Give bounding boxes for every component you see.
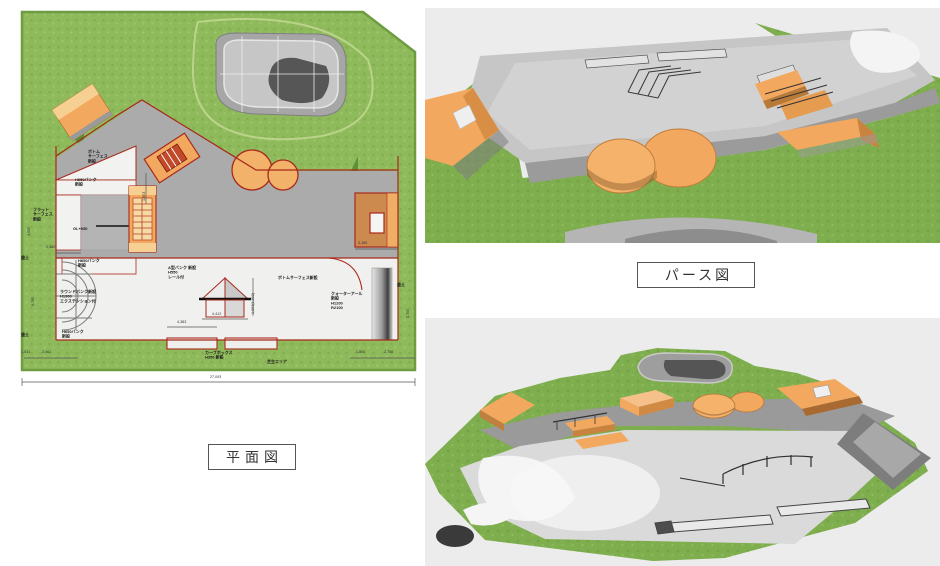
perspective-top-panel	[425, 8, 940, 243]
render2-dark-hollow	[436, 525, 474, 547]
plan-label-gl650: GL+650	[73, 227, 88, 232]
plan-dim-5700: 5,700	[406, 309, 410, 318]
plan-dim-1800: 1,800	[356, 350, 365, 354]
plan-label-flat-surface: フラット サーフェス 新設	[33, 208, 53, 222]
plan-dim-2756: 2,756	[384, 350, 393, 354]
plan-dim-4383: 4,383	[177, 320, 186, 324]
plan-dim-1893: 1,893(1,892)	[251, 293, 255, 314]
plan-label-h650-mid: H650バンク 新設	[78, 259, 100, 268]
plan-dim-1803: 1,803	[142, 192, 146, 201]
plan-label-lawn-area: 芝生エリア	[267, 360, 287, 365]
plan-label-round-bank: ラウンドバンク新設 H1300 エクステンション付	[60, 290, 96, 304]
plan-gl650-platform	[81, 195, 129, 250]
plan-flat-surface-col	[56, 195, 81, 250]
plan-view-panel: ボトム サーフェス 新設 H650バンク 新設 フラット サーフェス 新設 GL…	[20, 8, 420, 386]
perspective-top-render	[425, 8, 940, 243]
plan-dim-1031: 1,031	[21, 350, 30, 354]
plan-dim-6750: 6,750	[31, 297, 35, 306]
plan-label-a-type-bank: A型バンク 新設 H550 レール付	[168, 266, 196, 280]
plan-label-embankment-left-bottom: 盛土	[21, 333, 29, 338]
plan-label-embankment-left-top: 盛土	[21, 256, 29, 261]
plan-dim-27093: 27,093	[210, 375, 221, 379]
perspective-caption-text: パース図	[665, 265, 732, 285]
plan-quarter-window-bank	[355, 193, 398, 247]
plan-label-quarter-r: クォーターアール 新設 H1200 R2100	[331, 292, 363, 311]
perspective-caption-box: パース図	[637, 262, 755, 288]
plan-label-curb-box: カーブボックス H350 新設	[205, 351, 233, 360]
perspective-bottom-panel	[425, 318, 940, 566]
plan-dim-4412: 4,412	[212, 312, 221, 316]
render2-bowl	[638, 353, 732, 383]
plan-mound-small	[268, 160, 298, 190]
skatepark-design-sheet: ボトム サーフェス 新設 H650バンク 新設 フラット サーフェス 新設 GL…	[0, 0, 940, 566]
plan-dim-3165: 3,165	[358, 241, 367, 245]
plan-caption-box: 平面図	[208, 444, 296, 470]
plan-caption-text: 平面図	[226, 447, 283, 467]
plan-label-embankment-right: 盛土	[397, 283, 405, 288]
plan-dim-4000: 4,000	[27, 227, 31, 236]
plan-label-h650-bottom: H650バンク 新設	[62, 330, 84, 339]
plan-label-bottom-surface-main: ボトムサーフェス新設	[278, 276, 318, 281]
plan-quarter-wall	[372, 268, 392, 340]
perspective-bottom-render	[425, 318, 940, 566]
plan-label-bottom-surface-top: ボトム サーフェス 新設	[88, 150, 108, 164]
plan-label-h650-top: H650バンク 新設	[75, 178, 97, 187]
plan-dim-2461: 2,461	[42, 350, 51, 354]
plan-dim-2482: 2,482	[46, 245, 55, 249]
